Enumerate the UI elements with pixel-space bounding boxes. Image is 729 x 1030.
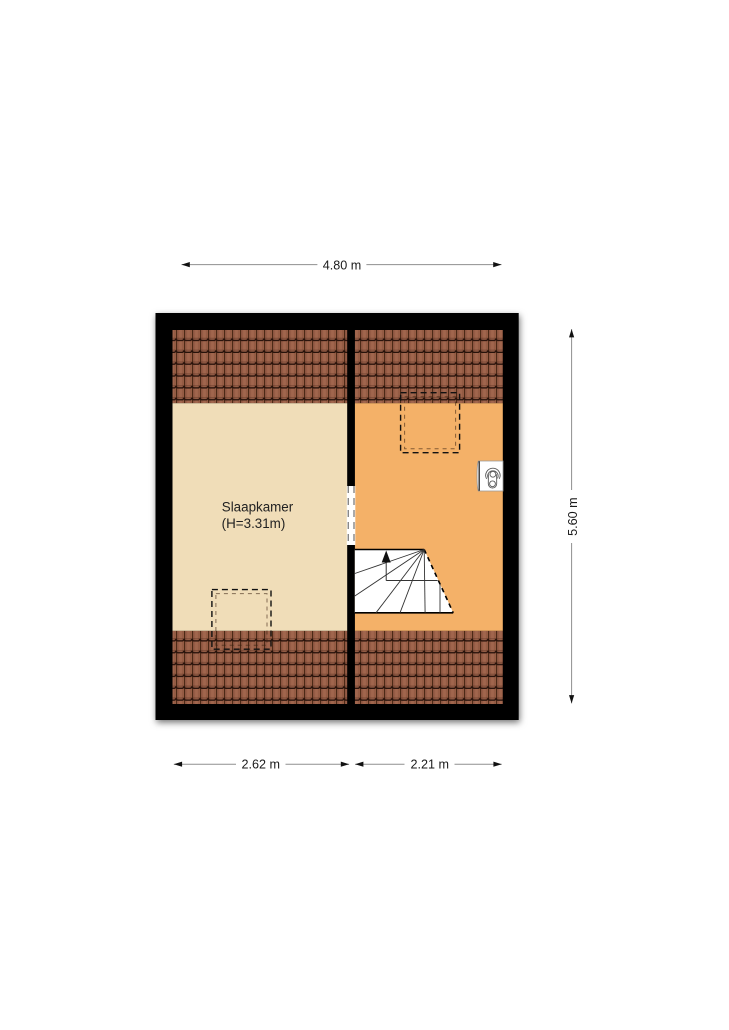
svg-text:Slaapkamer: Slaapkamer (222, 500, 294, 515)
svg-text:2.62 m: 2.62 m (241, 758, 280, 772)
svg-text:2.21 m: 2.21 m (410, 758, 449, 772)
svg-text:5.60 m: 5.60 m (566, 497, 580, 536)
svg-text:4.80 m: 4.80 m (323, 258, 362, 272)
svg-text:(H=3.31m): (H=3.31m) (222, 516, 286, 531)
